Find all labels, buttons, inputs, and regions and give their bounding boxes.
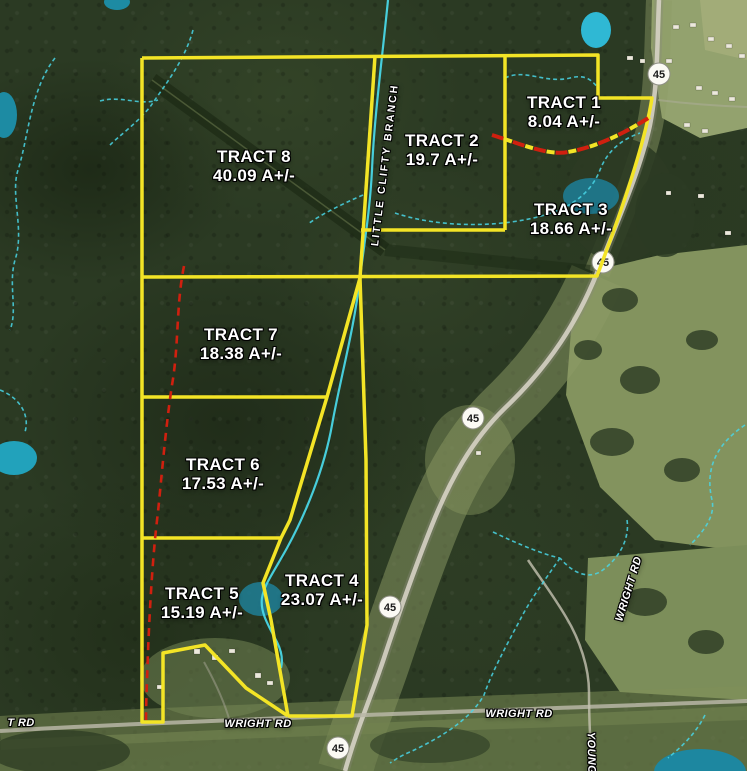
wright-rd-label: WRIGHT RD: [224, 718, 291, 730]
pond: [0, 92, 17, 138]
pond: [104, 0, 130, 10]
tract-1-label: TRACT 1 8.04 A+/-: [527, 93, 601, 131]
tract-acreage: 15.19 A+/-: [161, 603, 243, 622]
tract-8-label: TRACT 8 40.09 A+/-: [213, 147, 295, 185]
svg-text:45: 45: [332, 743, 344, 755]
wright-rd-label-partial: T RD: [7, 717, 34, 729]
tract-name: TRACT 4: [281, 571, 363, 590]
tract-acreage: 40.09 A+/-: [213, 166, 295, 185]
svg-text:45: 45: [653, 69, 665, 81]
tract-name: TRACT 1: [527, 93, 601, 112]
highway-45-shield: 45: [462, 407, 484, 429]
tract-4-label: TRACT 4 23.07 A+/-: [281, 571, 363, 609]
tract-2-label: TRACT 2 19.7 A+/-: [405, 131, 479, 169]
pond: [0, 441, 37, 475]
plat-map: 45 45 45 45: [0, 0, 747, 771]
highway-45-shield: 45: [648, 63, 670, 85]
tract-acreage: 23.07 A+/-: [281, 590, 363, 609]
tract-name: TRACT 7: [200, 325, 282, 344]
tract-acreage: 8.04 A+/-: [527, 112, 601, 131]
tract-name: TRACT 8: [213, 147, 295, 166]
wright-rd-label: WRIGHT RD: [485, 708, 552, 720]
tract-acreage: 18.66 A+/-: [530, 219, 612, 238]
young-rd-label: YOUNG: [585, 732, 598, 771]
pond: [581, 12, 611, 48]
highway-45-shield: 45: [379, 596, 401, 618]
tract-name: TRACT 5: [161, 584, 243, 603]
tract-5-label: TRACT 5 15.19 A+/-: [161, 584, 243, 622]
highway-45-shield: 45: [327, 737, 349, 759]
tract-name: TRACT 3: [530, 200, 612, 219]
tract-name: TRACT 2: [405, 131, 479, 150]
tract-acreage: 19.7 A+/-: [405, 150, 479, 169]
map-overlay-svg: 45 45 45 45: [0, 0, 747, 771]
tract-name: TRACT 6: [182, 455, 264, 474]
tract-acreage: 17.53 A+/-: [182, 474, 264, 493]
svg-text:45: 45: [384, 602, 396, 614]
tract-6-label: TRACT 6 17.53 A+/-: [182, 455, 264, 493]
tract-7-label: TRACT 7 18.38 A+/-: [200, 325, 282, 363]
tract-acreage: 18.38 A+/-: [200, 344, 282, 363]
tract-3-label: TRACT 3 18.66 A+/-: [530, 200, 612, 238]
svg-text:45: 45: [467, 413, 479, 425]
